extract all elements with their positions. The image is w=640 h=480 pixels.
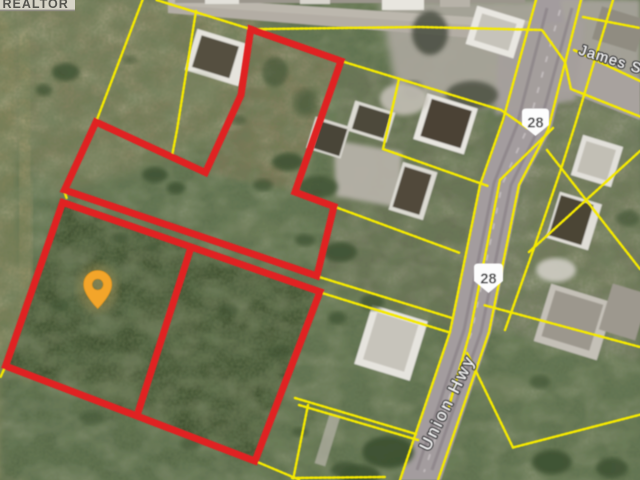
svg-text:28: 28 (527, 116, 543, 132)
svg-text:REALTOR: REALTOR (3, 0, 69, 11)
svg-text:28: 28 (480, 272, 496, 288)
